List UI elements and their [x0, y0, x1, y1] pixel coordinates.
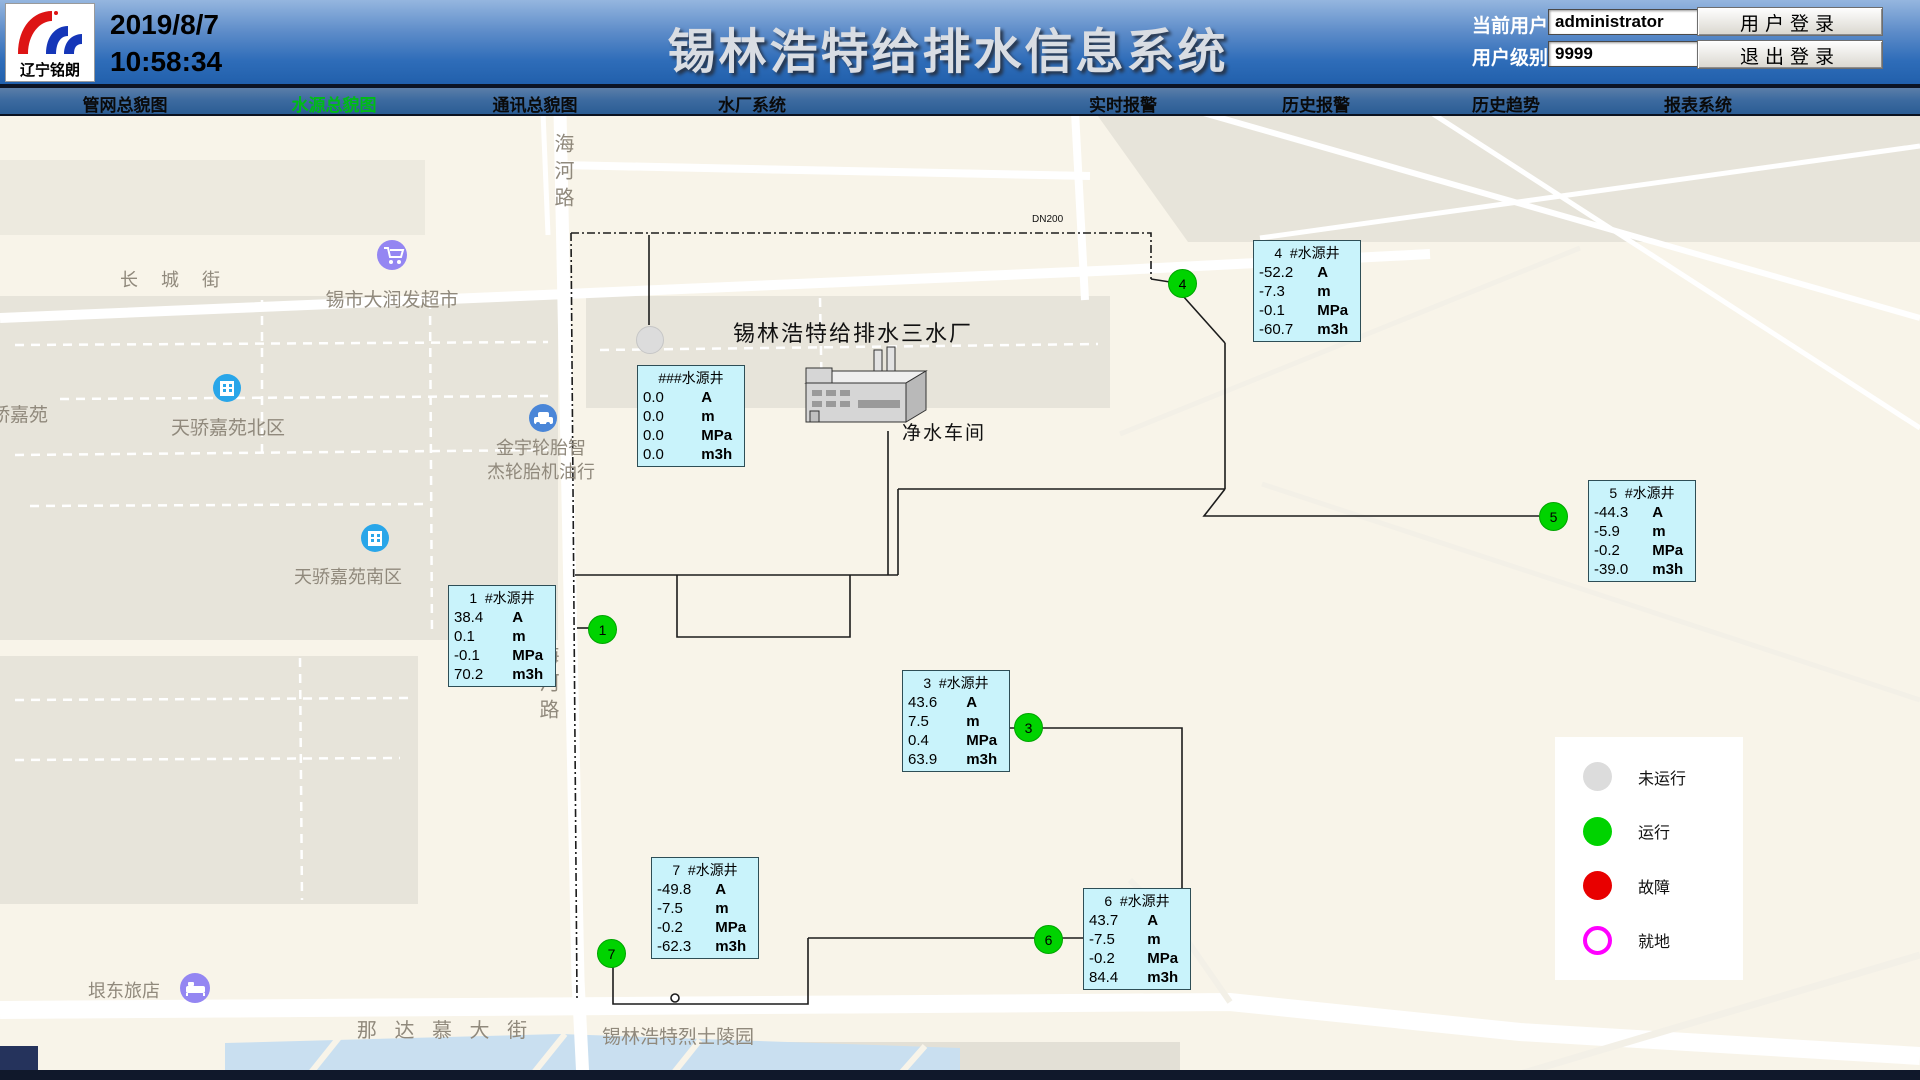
residential-building-icon: [213, 374, 241, 402]
plant-title: 锡林浩特给排水三水厂: [733, 316, 973, 348]
well-marker-stopped[interactable]: [636, 326, 664, 354]
street-label-haihe-north: 海河路: [548, 133, 577, 214]
well-box-1: 1 #水源井 38.4A 0.1m -0.1MPa 70.2m3h: [448, 585, 556, 687]
nav-plant-system[interactable]: 水厂系统: [718, 91, 786, 116]
nav-report-system[interactable]: 报表系统: [1664, 91, 1732, 116]
residential-building-icon: [361, 524, 389, 552]
user-level-label: 用户级别: [1472, 43, 1548, 70]
system-title: 锡林浩特给排水信息系统: [667, 12, 1228, 82]
header-bar: 辽宁铭朗 2019/8/7 10:58:34 锡林浩特给排水信息系统 当前用户 …: [0, 0, 1920, 88]
logout-button[interactable]: 退出登录: [1697, 40, 1883, 69]
current-user-input[interactable]: [1548, 9, 1698, 35]
well-title: 4 #水源井: [1254, 241, 1360, 263]
well-marker-3[interactable]: 3: [1014, 713, 1043, 742]
well-box-unassigned: ###水源井 0.0A 0.0m 0.0MPa 0.0m3h: [637, 365, 745, 467]
legend-item-stopped: 未运行: [1555, 762, 1743, 791]
poi-label-tire-shop-line2: 杰轮胎机油行: [487, 458, 595, 484]
poi-label-cemetery: 锡林浩特烈士陵园: [602, 1022, 754, 1049]
scada-screen: 长 城 街 锡市大润发超市 天骄嘉苑 天骄嘉苑北区 金宇轮胎智 杰轮胎机油行 天…: [0, 0, 1920, 1080]
local-status-icon: [1583, 926, 1612, 955]
well-box-7: 7 #水源井 -49.8A -7.5m -0.2MPa -62.3m3h: [651, 857, 759, 959]
bottom-border-strip: [0, 1070, 1920, 1080]
well-marker-1[interactable]: 1: [588, 615, 617, 644]
login-button[interactable]: 用户登录: [1697, 7, 1883, 36]
well-title: 6 #水源井: [1084, 889, 1190, 911]
well-title: 5 #水源井: [1589, 481, 1695, 503]
well-title: 3 #水源井: [903, 671, 1009, 693]
street-label-nadamu: 那 达 慕 大 街: [357, 1014, 533, 1043]
workshop-label: 净水车间: [902, 418, 986, 445]
legend-item-local: 就地: [1555, 926, 1743, 955]
poi-label-estate-north: 天骄嘉苑北区: [171, 413, 285, 440]
time-display: 10:58:34: [110, 43, 222, 80]
well-title: 1 #水源井: [449, 586, 555, 608]
company-logo: 辽宁铭朗: [5, 3, 95, 82]
well-box-4: 4 #水源井 -52.2A -7.3m -0.1MPa -60.7m3h: [1253, 240, 1361, 342]
well-box-6: 6 #水源井 43.7A -7.5m -0.2MPa 84.4m3h: [1083, 888, 1191, 990]
status-legend: 未运行 运行 故障 就地: [1555, 737, 1743, 980]
stopped-status-icon: [1583, 762, 1612, 791]
well-box-3: 3 #水源井 43.6A 7.5m 0.4MPa 63.9m3h: [902, 670, 1010, 772]
well-marker-7[interactable]: 7: [597, 939, 626, 968]
user-level-input[interactable]: [1548, 41, 1698, 67]
poi-label-tire-shop-line1: 金宇轮胎智: [496, 434, 586, 460]
nav-pipe-network-overview[interactable]: 管网总貌图: [83, 91, 168, 116]
logo-mark-icon: [10, 4, 90, 58]
logo-text: 辽宁铭朗: [6, 63, 94, 79]
pipe-diameter-label: DN200: [1032, 214, 1063, 225]
legend-item-running: 运行: [1555, 817, 1743, 846]
nav-history-alarm[interactable]: 历史报警: [1282, 91, 1350, 116]
well-marker-6[interactable]: 6: [1034, 925, 1063, 954]
nav-communication-overview[interactable]: 通讯总貌图: [493, 91, 578, 116]
datetime-display: 2019/8/7 10:58:34: [110, 6, 222, 80]
main-nav: 管网总貌图 水源总貌图 通讯总貌图 水厂系统 实时报警 历史报警 历史趋势 报表…: [0, 88, 1920, 116]
supermarket-cart-icon: [377, 240, 407, 270]
well-title: ###水源井: [638, 366, 744, 388]
legend-item-fault: 故障: [1555, 871, 1743, 900]
poi-label-estate-south: 天骄嘉苑南区: [294, 563, 402, 589]
well-box-5: 5 #水源井 -44.3A -5.9m -0.2MPa -39.0m3h: [1588, 480, 1696, 582]
nav-water-source-overview[interactable]: 水源总貌图: [292, 91, 377, 116]
fault-status-icon: [1583, 871, 1612, 900]
poi-label-hotel: 垠东旅店: [88, 977, 160, 1003]
nav-realtime-alarm[interactable]: 实时报警: [1089, 91, 1157, 116]
street-label-changcheng: 长 城 街: [120, 266, 229, 292]
poi-label-supermarket: 锡市大润发超市: [325, 285, 458, 312]
current-user-label: 当前用户: [1472, 11, 1548, 38]
hotel-bed-icon: [180, 973, 210, 1003]
nav-history-trend[interactable]: 历史趋势: [1472, 91, 1540, 116]
well-marker-4[interactable]: 4: [1168, 269, 1197, 298]
car-service-icon: [529, 404, 557, 432]
poi-label-estate-west: 天骄嘉苑: [0, 400, 48, 427]
well-marker-5[interactable]: 5: [1539, 502, 1568, 531]
well-title: 7 #水源井: [652, 858, 758, 880]
running-status-icon: [1583, 817, 1612, 846]
date-display: 2019/8/7: [110, 6, 222, 43]
